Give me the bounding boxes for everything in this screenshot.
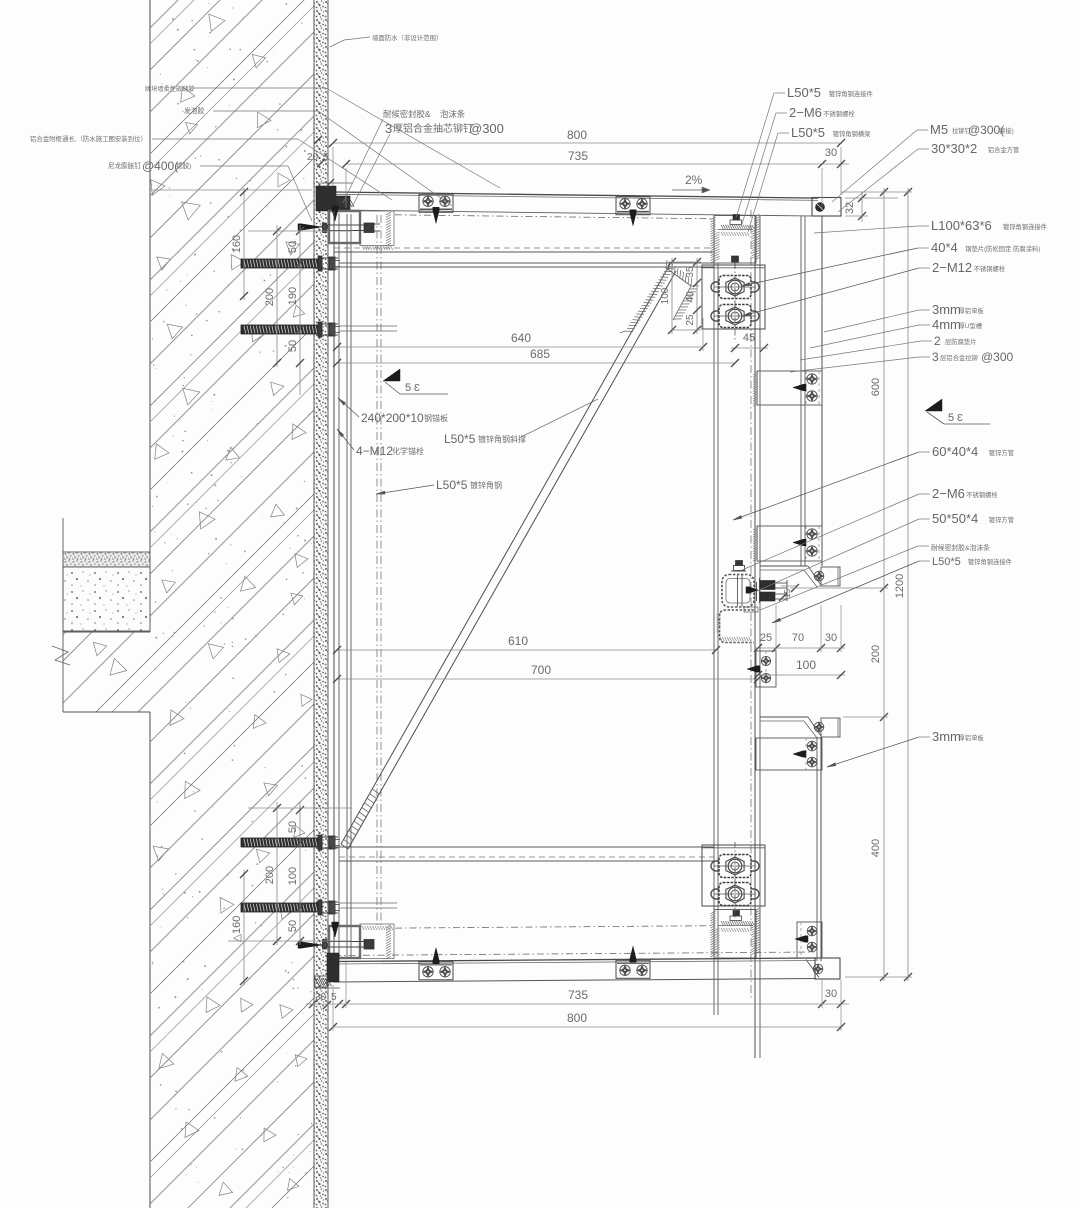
svg-text:50: 50 xyxy=(287,821,299,833)
svg-text:100: 100 xyxy=(660,287,671,304)
svg-text:400: 400 xyxy=(870,839,882,857)
svg-text:30: 30 xyxy=(825,147,837,159)
svg-text:50: 50 xyxy=(287,920,299,932)
svg-text:600: 600 xyxy=(870,378,882,396)
svg-text:泡沫条: 泡沫条 xyxy=(440,109,466,119)
svg-text:钢垫片(防松固定 防腐涂料): 钢垫片(防松固定 防腐涂料) xyxy=(965,244,1040,253)
svg-text:5: 5 xyxy=(405,382,411,394)
svg-text:2−M6: 2−M6 xyxy=(789,105,822,120)
svg-text:@400(: @400( xyxy=(142,159,178,173)
svg-text:不锈钢螺栓: 不锈钢螺栓 xyxy=(823,109,855,118)
svg-text:厚铝单板: 厚铝单板 xyxy=(959,733,985,742)
svg-text:610: 610 xyxy=(508,634,528,648)
svg-text:镀锌角钢连接件: 镀锌角钢连接件 xyxy=(829,89,873,98)
svg-text:墙面防水（非设计范围）: 墙面防水（非设计范围） xyxy=(372,33,442,42)
svg-text:2−M12: 2−M12 xyxy=(932,260,972,275)
svg-text:5: 5 xyxy=(948,412,954,424)
svg-text:200: 200 xyxy=(264,866,276,884)
svg-text:800: 800 xyxy=(567,128,587,142)
svg-text:牀块墙柔性嵌缝胶: 牀块墙柔性嵌缝胶 xyxy=(145,85,195,93)
svg-text:层防腐垫片: 层防腐垫片 xyxy=(945,337,976,346)
svg-text:镀锌角钢斜撑: 镀锌角钢斜撑 xyxy=(478,434,526,444)
svg-text:685: 685 xyxy=(530,347,550,361)
svg-text:L50*5: L50*5 xyxy=(436,478,468,492)
svg-text:@300: @300 xyxy=(469,121,504,136)
svg-text:100: 100 xyxy=(796,658,816,672)
svg-text:735: 735 xyxy=(568,149,588,163)
svg-text:耐候密封胶&泡沫条: 耐候密封胶&泡沫条 xyxy=(931,543,990,552)
svg-text:40: 40 xyxy=(685,291,696,303)
svg-text:40*4: 40*4 xyxy=(931,240,958,255)
svg-text:尼龙膨胀钉: 尼龙膨胀钉 xyxy=(108,161,141,170)
svg-text:32: 32 xyxy=(844,202,856,214)
svg-text:@300: @300 xyxy=(981,350,1014,364)
svg-text:735: 735 xyxy=(568,988,588,1002)
svg-text:3: 3 xyxy=(385,121,392,136)
svg-text:2−M6: 2−M6 xyxy=(932,486,965,501)
svg-text:厚U型槽: 厚U型槽 xyxy=(959,321,983,330)
svg-text:L50*5: L50*5 xyxy=(791,125,825,140)
svg-text:4mm: 4mm xyxy=(932,317,961,332)
svg-text:100: 100 xyxy=(287,867,299,885)
svg-text:5: 5 xyxy=(331,992,337,1003)
svg-text:50: 50 xyxy=(287,340,299,352)
svg-text:L50*5: L50*5 xyxy=(444,432,476,446)
svg-text:25: 25 xyxy=(685,314,696,326)
svg-text:层铝合金拉铆: 层铝合金拉铆 xyxy=(940,353,978,362)
svg-text:厚铝合金抽芯铆钉: 厚铝合金抽芯铆钉 xyxy=(393,122,473,135)
svg-text:厚铝单板: 厚铝单板 xyxy=(959,306,985,315)
svg-text:15: 15 xyxy=(783,589,792,598)
svg-text:1200: 1200 xyxy=(894,574,906,598)
svg-text:3mm: 3mm xyxy=(932,302,961,317)
svg-text:4−M12: 4−M12 xyxy=(356,444,393,458)
svg-text:镀锌方管: 镀锌方管 xyxy=(989,515,1014,524)
svg-text:30*30*2: 30*30*2 xyxy=(931,141,977,156)
svg-text:△160: △160 xyxy=(231,916,243,943)
svg-text:200: 200 xyxy=(870,645,882,663)
svg-text:不锈钢螺栓: 不锈钢螺栓 xyxy=(966,490,998,499)
svg-text:3mm: 3mm xyxy=(932,729,961,744)
svg-text:Ɛ: Ɛ xyxy=(414,383,420,394)
svg-text:L50*5: L50*5 xyxy=(932,556,961,568)
svg-text:锶胶): 锶胶) xyxy=(176,161,191,170)
svg-text:M5: M5 xyxy=(930,122,948,137)
svg-text:200: 200 xyxy=(264,288,276,306)
svg-text:60*40*4: 60*40*4 xyxy=(932,444,978,459)
svg-text:30: 30 xyxy=(315,992,327,1003)
svg-text:25: 25 xyxy=(760,632,772,644)
svg-text:35: 35 xyxy=(685,266,696,278)
svg-text:化学锚栓: 化学锚栓 xyxy=(392,446,424,456)
svg-text:45: 45 xyxy=(743,332,755,344)
svg-text:铝合金附框通长,（防水施工图安装到位）: 铝合金附框通长,（防水施工图安装到位） xyxy=(30,134,147,143)
svg-text:70: 70 xyxy=(792,632,804,644)
svg-text:3: 3 xyxy=(932,350,939,364)
svg-text:20: 20 xyxy=(307,152,319,163)
svg-text:发泡胶: 发泡胶 xyxy=(184,106,205,115)
svg-text:190: 190 xyxy=(287,287,299,305)
svg-text:30: 30 xyxy=(825,988,837,1000)
svg-text:L50*5: L50*5 xyxy=(787,85,821,100)
svg-text:L100*63*6: L100*63*6 xyxy=(931,218,992,233)
svg-text:铝合金方管: 铝合金方管 xyxy=(988,145,1019,154)
svg-text:240*200*10: 240*200*10 xyxy=(361,411,424,425)
svg-text:不锈钢螺栓: 不锈钢螺栓 xyxy=(974,264,1006,273)
svg-text:铆接): 铆接) xyxy=(999,126,1014,135)
svg-text:640: 640 xyxy=(511,331,531,345)
svg-text:镀锌方管: 镀锌方管 xyxy=(989,448,1014,457)
svg-text:钢锚板: 钢锚板 xyxy=(424,413,448,423)
svg-text:2%: 2% xyxy=(685,173,703,187)
svg-text:700: 700 xyxy=(531,663,551,677)
svg-text:2: 2 xyxy=(934,334,941,348)
svg-text:50: 50 xyxy=(287,241,299,253)
svg-text:镀锌角钢连接件: 镀锌角钢连接件 xyxy=(968,557,1012,566)
svg-text:50*50*4: 50*50*4 xyxy=(932,511,978,526)
svg-text:镀锌角钢连接件: 镀锌角钢连接件 xyxy=(1003,222,1047,231)
svg-text:Ɛ: Ɛ xyxy=(957,413,963,424)
svg-text:镀锌角钢: 镀锌角钢 xyxy=(470,480,502,490)
svg-text:800: 800 xyxy=(567,1011,587,1025)
svg-text:30: 30 xyxy=(825,632,837,644)
svg-text:镀锌角钢横梁: 镀锌角钢横梁 xyxy=(833,129,871,138)
svg-text:160: 160 xyxy=(231,235,243,253)
svg-text:耐候密封胶&: 耐候密封胶& xyxy=(383,109,431,119)
